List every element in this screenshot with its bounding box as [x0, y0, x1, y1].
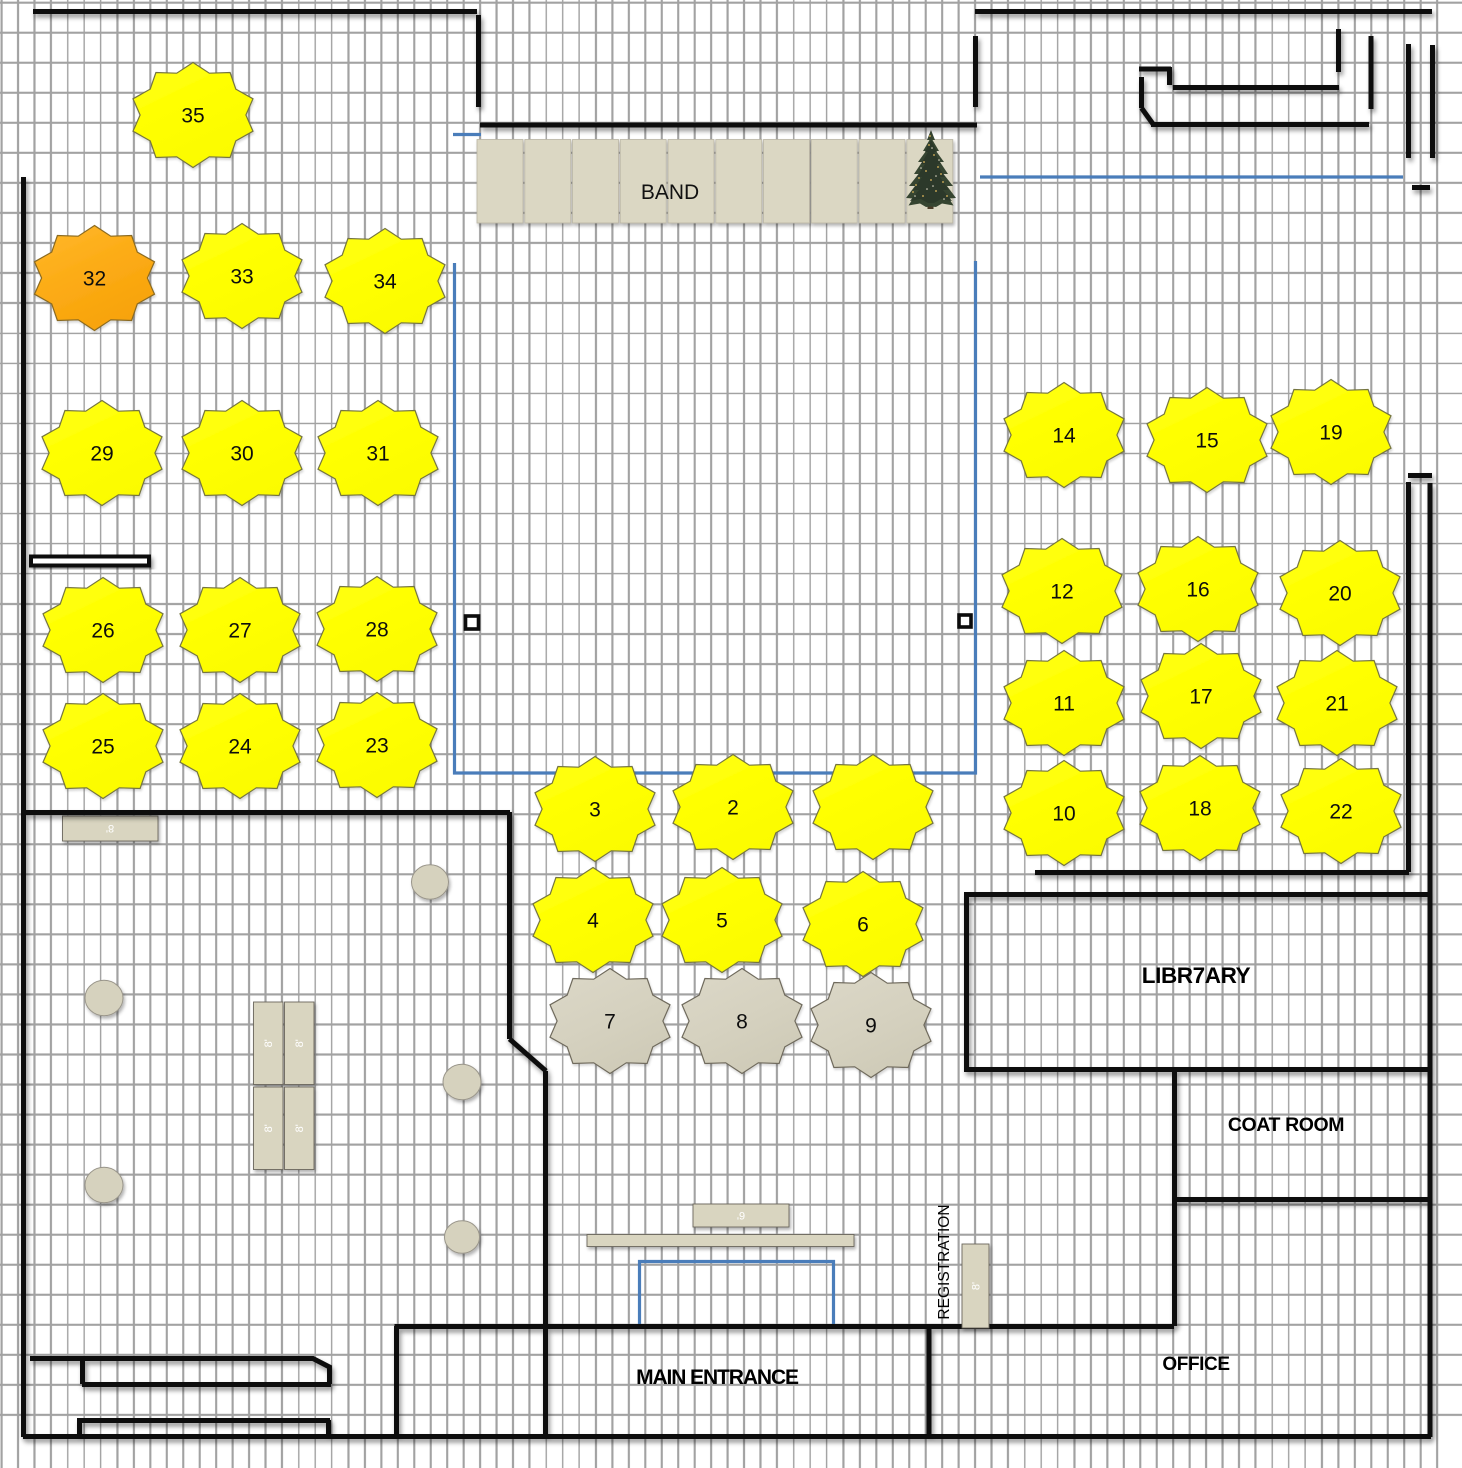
svg-text:4: 4 [587, 910, 599, 933]
svg-text:29: 29 [90, 443, 113, 466]
svg-text:18: 18 [1188, 798, 1211, 821]
svg-text:8': 8' [263, 1039, 275, 1047]
svg-text:21: 21 [1325, 693, 1348, 716]
svg-text:8': 8' [971, 1282, 983, 1290]
svg-text:MAIN ENTRANCE: MAIN ENTRANCE [636, 1366, 799, 1389]
svg-text:34: 34 [373, 271, 397, 294]
svg-text:31: 31 [366, 443, 389, 466]
svg-text:14: 14 [1052, 425, 1076, 448]
svg-text:COAT ROOM: COAT ROOM [1228, 1114, 1344, 1136]
svg-text:8': 8' [106, 822, 114, 834]
svg-text:20: 20 [1328, 583, 1351, 606]
svg-text:10: 10 [1052, 803, 1075, 826]
svg-text:8': 8' [263, 1124, 275, 1132]
svg-text:2: 2 [727, 797, 739, 820]
svg-text:6: 6 [857, 914, 869, 937]
svg-text:BAND: BAND [641, 181, 699, 204]
svg-text:22: 22 [1329, 801, 1352, 824]
svg-text:5: 5 [716, 910, 728, 933]
svg-text:16: 16 [1186, 579, 1209, 602]
svg-text:15: 15 [1195, 430, 1218, 453]
svg-text:REGISTRATION: REGISTRATION [936, 1204, 953, 1319]
svg-text:28: 28 [365, 619, 388, 642]
svg-text:35: 35 [181, 105, 204, 128]
svg-text:6': 6' [737, 1209, 745, 1221]
svg-text:27: 27 [228, 620, 251, 643]
svg-text:26: 26 [91, 620, 114, 643]
svg-text:17: 17 [1189, 686, 1212, 709]
svg-text:32: 32 [83, 268, 106, 291]
svg-text:24: 24 [228, 736, 252, 759]
svg-text:OFFICE: OFFICE [1162, 1354, 1229, 1375]
svg-text:23: 23 [365, 735, 388, 758]
svg-text:7: 7 [604, 1011, 616, 1034]
svg-text:25: 25 [91, 736, 114, 759]
svg-text:8': 8' [294, 1039, 306, 1047]
svg-text:LIBR7ARY: LIBR7ARY [1142, 963, 1251, 988]
svg-text:9: 9 [865, 1015, 877, 1038]
svg-text:19: 19 [1319, 422, 1342, 445]
svg-text:12: 12 [1050, 581, 1073, 604]
svg-text:3: 3 [589, 799, 601, 822]
svg-text:8': 8' [294, 1124, 306, 1132]
svg-text:11: 11 [1053, 693, 1075, 716]
svg-text:8: 8 [736, 1011, 748, 1034]
svg-text:33: 33 [230, 266, 253, 289]
svg-text:30: 30 [230, 443, 253, 466]
